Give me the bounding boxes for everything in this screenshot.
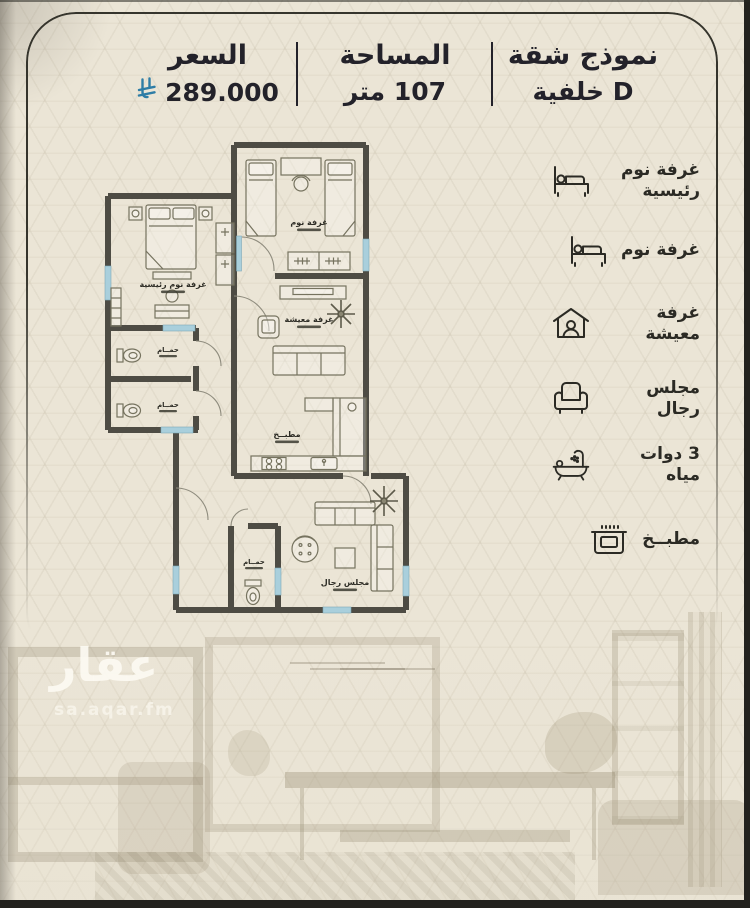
bottom-edge-bar: [0, 900, 750, 908]
photo-plant-center: [545, 712, 617, 774]
floor-plan: غرفة نوم رئيسية غرفة نوم غرفة معيشة مطبـ…: [93, 136, 433, 630]
room-label-living: غرفة معيشة: [284, 315, 333, 324]
header-divider: [491, 42, 493, 106]
master-bed-icon: [550, 162, 592, 200]
price-value-row: 289.000: [120, 77, 295, 107]
room-label-kitchen: مطبــخ: [273, 430, 300, 439]
photo-sofa-right: [598, 800, 750, 895]
legend-label: غرفة معيشة: [604, 303, 700, 346]
legend-label: مجلس رجال: [604, 378, 700, 421]
photo-bench: [340, 830, 570, 842]
legend-label: غرفة نوم: [621, 240, 700, 261]
room-label-bedroom: غرفة نوم: [290, 218, 327, 227]
photo-table-leg: [300, 788, 304, 860]
legend-item-master-bedroom: غرفة نوم رئيسية: [550, 160, 700, 203]
armchair-icon: [550, 380, 592, 418]
header: نموذج شقة D خلفية المساحة 107 متر السعر: [0, 40, 750, 120]
photo-shelf-unit: [612, 630, 684, 825]
price-title: السعر: [120, 40, 295, 71]
saudi-riyal-icon: [136, 77, 158, 107]
stove-icon: [588, 521, 630, 559]
watermark-site-text: sa.aqar.fm: [54, 700, 175, 720]
photo-plant-small: [228, 730, 270, 776]
legend-item-kitchen: مطبــخ: [588, 521, 700, 559]
price-block: السعر 289.000: [120, 40, 295, 107]
area-block: المساحة 107 متر: [310, 40, 480, 106]
living-room-icon: [550, 305, 592, 343]
legend-item-bathrooms: 3 دوات مياه: [550, 444, 700, 487]
area-value: 107 متر: [310, 77, 480, 106]
room-label-bathroom-3: حمــام: [243, 558, 265, 566]
interior-photo-faded: عقار sa.aqar.fm: [0, 612, 750, 908]
model-block: نموذج شقة D خلفية: [488, 40, 678, 106]
legend-label: 3 دوات مياه: [604, 444, 700, 487]
model-value: D خلفية: [488, 77, 678, 106]
legend-item-living-room: غرفة معيشة: [550, 303, 700, 346]
room-label-bathroom-2: حمــام: [157, 401, 179, 409]
legend-label: مطبــخ: [642, 529, 700, 550]
right-edge-bar: [744, 0, 750, 908]
header-divider: [296, 42, 298, 106]
photo-table-leg: [592, 788, 596, 860]
area-title: المساحة: [310, 40, 480, 71]
photo-dining-table: [285, 772, 615, 788]
left-edge-shadow: [0, 0, 16, 908]
photo-pendant-lamp: [290, 662, 385, 664]
legend-label: غرفة نوم رئيسية: [604, 160, 700, 203]
legend-item-majlis: مجلس رجال: [550, 378, 700, 421]
poster-canvas: نموذج شقة D خلفية المساحة 107 متر السعر: [0, 0, 750, 908]
room-label-bathroom-1: حمــام: [157, 346, 179, 354]
room-label-majlis: مجلس رجال: [321, 578, 369, 588]
price-value: 289.000: [165, 78, 279, 107]
top-edge-bar: [0, 0, 750, 2]
bathtub-icon: [550, 446, 592, 484]
model-title: نموذج شقة: [488, 40, 678, 71]
legend-item-bedroom: غرفة نوم: [567, 232, 700, 270]
bed-icon: [567, 232, 609, 270]
watermark-logo: عقار: [50, 638, 158, 692]
photo-rug: [95, 852, 575, 900]
room-label-master: غرفة نوم رئيسية: [139, 280, 206, 289]
